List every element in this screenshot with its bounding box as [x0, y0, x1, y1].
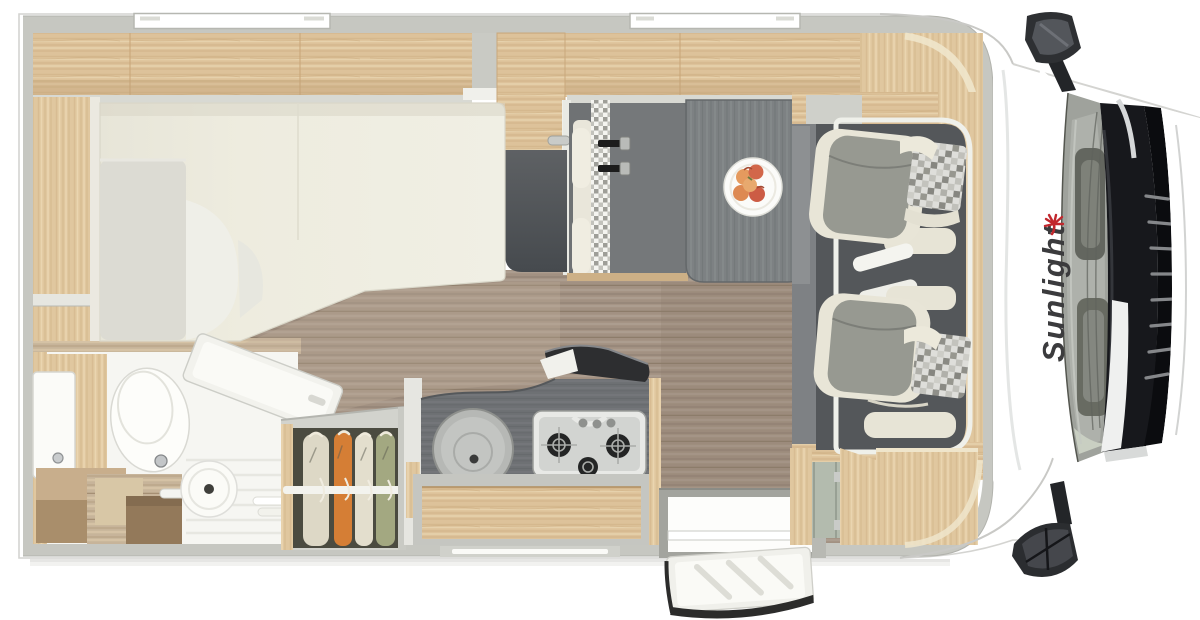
svg-text:Sunlight: Sunlight	[1036, 224, 1071, 362]
